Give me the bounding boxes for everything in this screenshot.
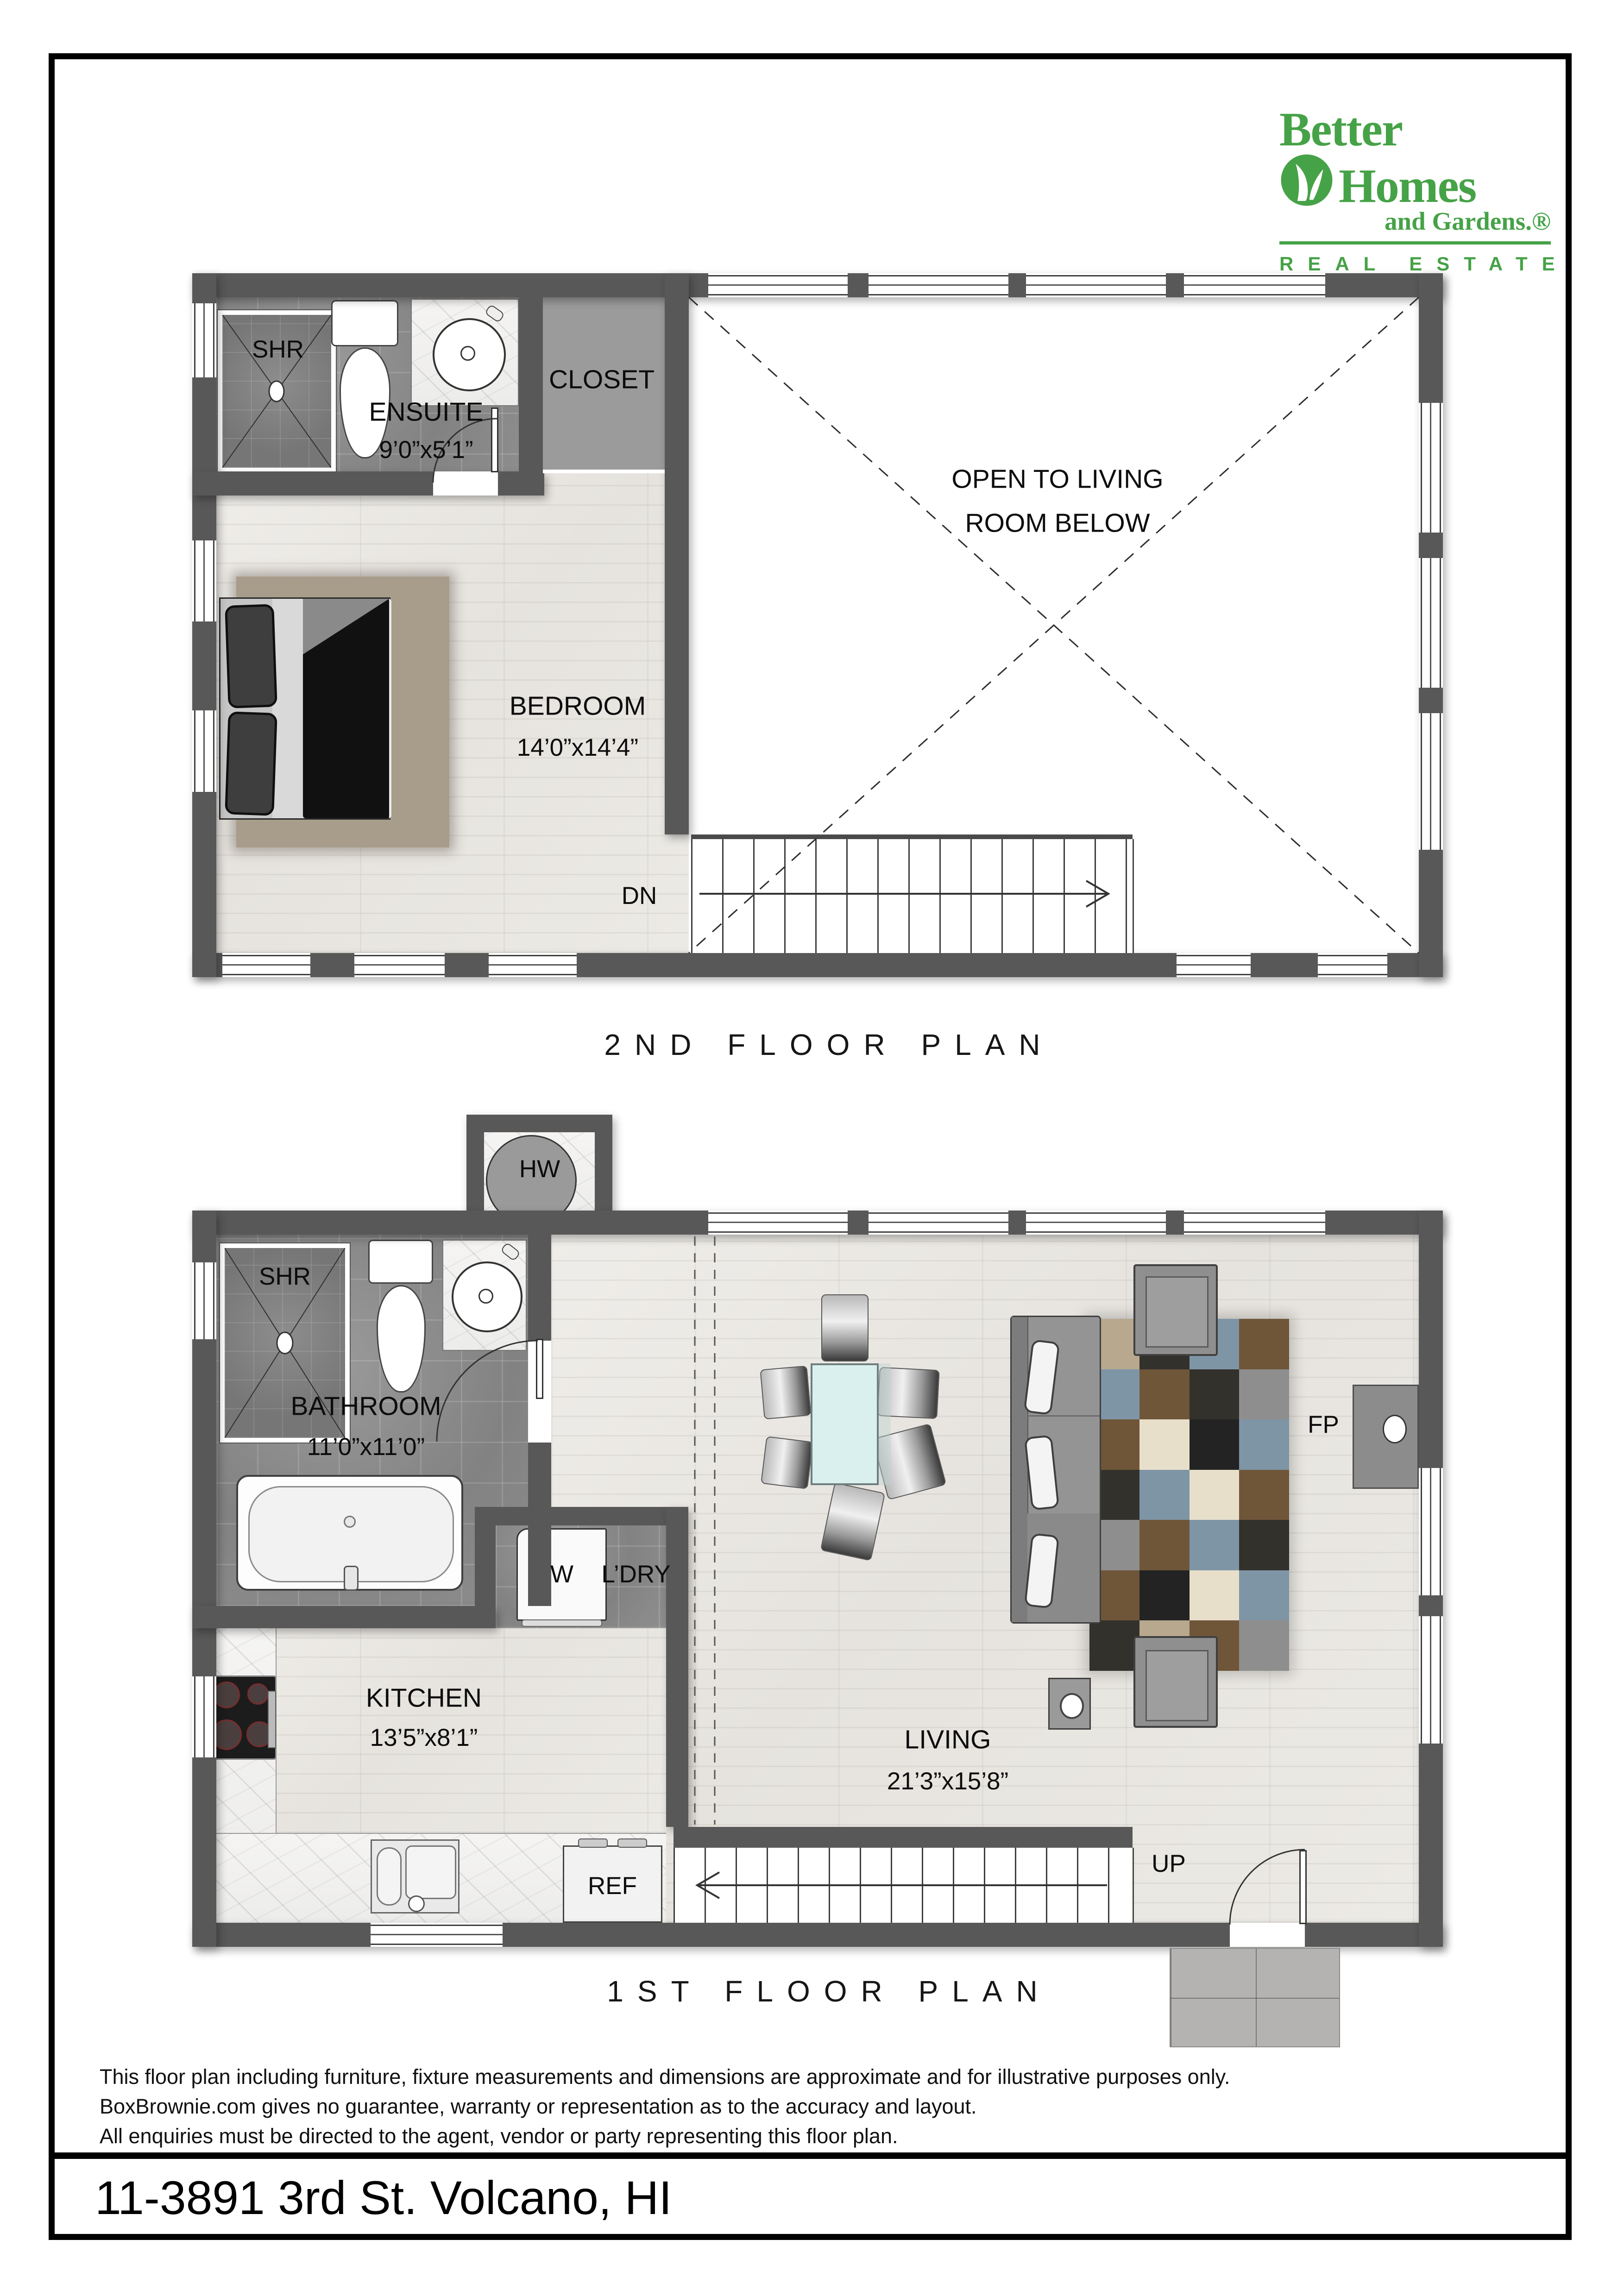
room-label-ensuite: ENSUITE bbox=[369, 398, 483, 427]
disclaimer-line-1: This floor plan including furniture, fix… bbox=[100, 2066, 1230, 2087]
window bbox=[222, 953, 310, 977]
room-dim-kitchen: 13’5”x8’1” bbox=[370, 1725, 478, 1751]
bed-pillow bbox=[225, 604, 277, 709]
window bbox=[1184, 273, 1325, 297]
rug-square bbox=[1190, 1419, 1240, 1470]
room-dim-bedroom: 14’0”x14’4” bbox=[517, 734, 638, 761]
first-floor-plan: HW REF bbox=[192, 1104, 1443, 2077]
window bbox=[708, 1211, 848, 1235]
window bbox=[192, 303, 216, 377]
armchair bbox=[1133, 1636, 1218, 1728]
label-fp: FP bbox=[1308, 1411, 1339, 1438]
window bbox=[192, 540, 216, 621]
window bbox=[1318, 953, 1387, 977]
sink-drain bbox=[478, 1289, 493, 1304]
window bbox=[489, 953, 577, 977]
window bbox=[1419, 713, 1443, 850]
logo-better: Better bbox=[1279, 107, 1551, 152]
rug-square bbox=[1190, 1570, 1240, 1621]
room-dim-living: 21’3”x15’8” bbox=[887, 1768, 1008, 1795]
window bbox=[869, 273, 1008, 297]
rug-square bbox=[1089, 1620, 1139, 1671]
stairs-label-up: UP bbox=[1152, 1851, 1186, 1877]
fireplace bbox=[1353, 1385, 1419, 1489]
window bbox=[1026, 273, 1166, 297]
dining-table bbox=[811, 1363, 879, 1485]
dining-chair bbox=[761, 1436, 813, 1489]
sink-drain bbox=[460, 346, 475, 361]
label-washer: W bbox=[550, 1561, 573, 1588]
door-leaf bbox=[536, 1339, 543, 1399]
rug-square bbox=[1139, 1470, 1190, 1520]
window bbox=[354, 953, 445, 977]
stairs-wall bbox=[674, 1827, 1133, 1848]
leaf-icon bbox=[1279, 153, 1334, 207]
vanity-counter bbox=[442, 1240, 527, 1351]
faucet-icon bbox=[500, 1242, 521, 1261]
window bbox=[1419, 403, 1443, 533]
stairs-label-dn: DN bbox=[622, 883, 657, 910]
entry-patio bbox=[1170, 1948, 1340, 2047]
window bbox=[1419, 1468, 1443, 1595]
toilet bbox=[331, 300, 398, 346]
laundry-wall bbox=[475, 1507, 666, 1525]
closet-wall bbox=[519, 273, 543, 471]
stairs-up bbox=[674, 1848, 1134, 1923]
dining-chair bbox=[821, 1294, 869, 1361]
second-floor-title: 2ND FLOOR PLAN bbox=[604, 1028, 1054, 1062]
entry-opening bbox=[1230, 1923, 1305, 1947]
floor-plan-page: Better Homes and Gardens.® REAL ESTATE bbox=[0, 0, 1624, 2296]
window bbox=[1177, 953, 1251, 977]
logo-and-gardens: and Gardens.® bbox=[1279, 208, 1551, 234]
rug-square bbox=[1139, 1570, 1190, 1621]
logo-homes: Homes bbox=[1339, 165, 1476, 207]
rug-square bbox=[1239, 1620, 1289, 1671]
room-label-open-1: OPEN TO LIVING bbox=[951, 465, 1163, 494]
rug-square bbox=[1239, 1319, 1289, 1369]
kitchen-sink bbox=[371, 1839, 460, 1913]
side-table bbox=[1048, 1678, 1091, 1730]
window bbox=[192, 1676, 216, 1757]
rug-square bbox=[1139, 1520, 1190, 1570]
room-label-shr1: SHR bbox=[259, 1263, 311, 1290]
room-dim-bathroom: 11’0”x11’0” bbox=[307, 1434, 425, 1461]
window bbox=[1184, 1211, 1325, 1235]
living-rug bbox=[1089, 1319, 1289, 1671]
dining-chair bbox=[877, 1367, 939, 1419]
label-hw: HW bbox=[519, 1156, 560, 1183]
logo-rule bbox=[1279, 241, 1551, 245]
rug-square bbox=[1239, 1470, 1289, 1520]
bedroom-divider-wall bbox=[665, 273, 689, 834]
room-label-bedroom: BEDROOM bbox=[510, 692, 646, 721]
wall bbox=[192, 273, 216, 977]
rug-square bbox=[1190, 1470, 1240, 1520]
divider-wall bbox=[666, 1507, 688, 1827]
faucet-icon bbox=[408, 1895, 425, 1912]
window bbox=[1026, 1211, 1166, 1235]
cooktop bbox=[206, 1675, 277, 1760]
room-label-closet: CLOSET bbox=[549, 365, 655, 395]
room-label-open-2: ROOM BELOW bbox=[965, 509, 1150, 538]
disclaimer-line-3: All enquiries must be directed to the ag… bbox=[100, 2126, 898, 2146]
disclaimer-line-2: BoxBrownie.com gives no guarantee, warra… bbox=[100, 2096, 977, 2117]
room-label-living: LIVING bbox=[905, 1725, 991, 1755]
footer-divider bbox=[49, 2152, 1572, 2159]
door-leaf bbox=[491, 408, 498, 472]
rug-square bbox=[1190, 1369, 1240, 1420]
room-label-bathroom: BATHROOM bbox=[290, 1392, 441, 1421]
faucet-icon bbox=[485, 304, 505, 323]
window bbox=[192, 1262, 216, 1339]
bhg-logo: Better Homes and Gardens.® REAL ESTATE bbox=[1279, 107, 1551, 275]
first-floor-title: 1ST FLOOR PLAN bbox=[607, 1974, 1051, 2008]
rug-square bbox=[1239, 1570, 1289, 1621]
window bbox=[1419, 1616, 1443, 1744]
tub-faucet bbox=[344, 1566, 359, 1591]
label-laundry: L’DRY bbox=[601, 1561, 670, 1588]
rug-square bbox=[1239, 1419, 1289, 1470]
rug-square bbox=[1190, 1520, 1240, 1570]
bed-duvet bbox=[303, 599, 391, 818]
closet-opening bbox=[543, 470, 665, 473]
rug-square bbox=[1239, 1369, 1289, 1420]
toilet bbox=[368, 1240, 433, 1284]
room-dim-ensuite: 9’0”x5’1” bbox=[379, 437, 473, 464]
room-label-kitchen: KITCHEN bbox=[366, 1684, 482, 1713]
door-opening bbox=[433, 471, 498, 496]
door-leaf bbox=[1299, 1850, 1307, 1924]
window bbox=[371, 1923, 503, 1947]
armchair bbox=[1133, 1264, 1218, 1356]
dining-chair bbox=[760, 1366, 811, 1419]
logo-tagline: REAL ESTATE bbox=[1279, 253, 1551, 275]
window bbox=[1419, 558, 1443, 688]
window bbox=[708, 273, 848, 297]
bathtub bbox=[236, 1475, 463, 1591]
bed-pillow bbox=[225, 711, 277, 816]
bed-sheet bbox=[272, 599, 306, 818]
stairs-down bbox=[691, 839, 1134, 953]
rug-square bbox=[1139, 1419, 1190, 1470]
room-label-shr: SHR bbox=[252, 336, 304, 363]
property-address: 11-3891 3rd St. Volcano, HI bbox=[95, 2171, 1531, 2225]
vanity-counter bbox=[411, 299, 519, 406]
shower-tray bbox=[218, 310, 336, 472]
bathroom-wall bbox=[192, 1606, 496, 1628]
window bbox=[192, 710, 216, 792]
rug-square bbox=[1139, 1369, 1190, 1420]
rug-square bbox=[1239, 1520, 1289, 1570]
stairs-edge bbox=[691, 834, 1133, 839]
second-floor-plan: SHR ENSUITE 9’0”x5’1” CLOSET OPEN TO LIV… bbox=[192, 273, 1443, 977]
label-ref: REF bbox=[588, 1873, 637, 1900]
window bbox=[869, 1211, 1008, 1235]
